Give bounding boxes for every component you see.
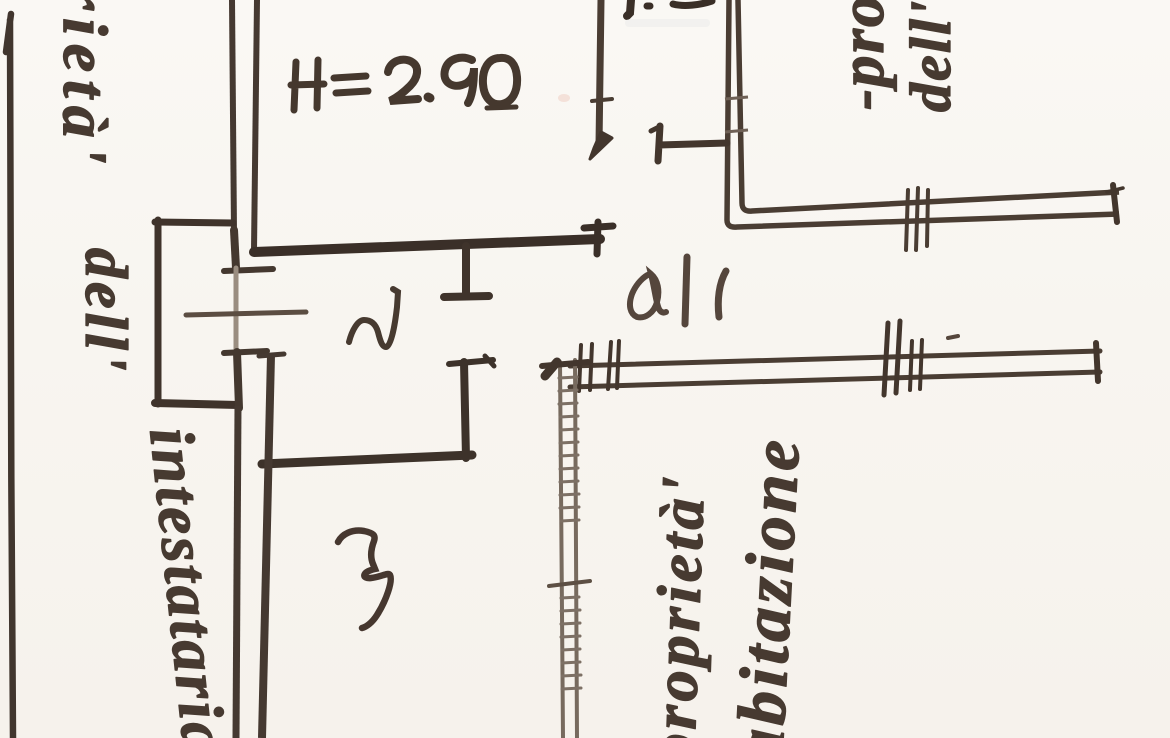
svg-text:prietà': prietà' xyxy=(50,0,121,172)
svg-text:abitazione: abitazione xyxy=(721,434,814,738)
svg-text:dell': dell' xyxy=(73,248,139,375)
svg-text:dell': dell' xyxy=(898,0,963,112)
svg-text:proprietà': proprietà' xyxy=(640,472,718,738)
svg-text:-pro: -pro xyxy=(827,0,897,110)
